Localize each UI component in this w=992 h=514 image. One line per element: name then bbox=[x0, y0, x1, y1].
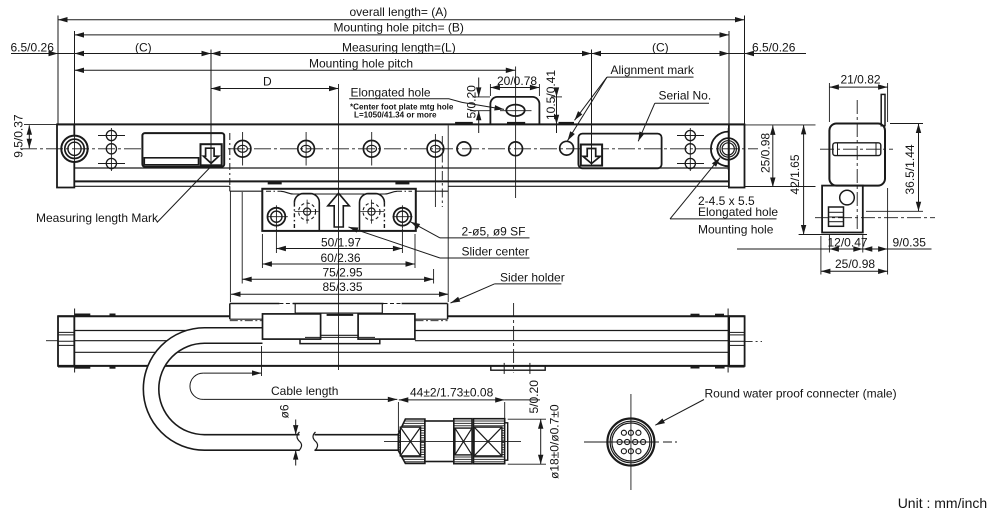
svg-text:60/2.36: 60/2.36 bbox=[321, 251, 361, 265]
svg-text:Round water proof connecter (m: Round water proof connecter (male) bbox=[705, 386, 897, 400]
svg-text:Elongated hole: Elongated hole bbox=[351, 85, 431, 99]
svg-text:Sider holder: Sider holder bbox=[500, 270, 565, 284]
svg-text:50/1.97: 50/1.97 bbox=[321, 235, 361, 249]
svg-text:36.5/1.44: 36.5/1.44 bbox=[903, 144, 917, 194]
svg-text:5/0.20: 5/0.20 bbox=[464, 85, 478, 119]
svg-text:6.5/0.26: 6.5/0.26 bbox=[11, 41, 55, 55]
svg-text:Measuring length=(L): Measuring length=(L) bbox=[342, 40, 456, 54]
svg-text:Mounting hole pitch= (B): Mounting hole pitch= (B) bbox=[334, 21, 464, 35]
svg-text:25/0.98: 25/0.98 bbox=[835, 257, 875, 271]
svg-text:12/0.47: 12/0.47 bbox=[828, 236, 868, 250]
svg-text:Elongated hole: Elongated hole bbox=[698, 205, 778, 219]
svg-text:25/0.98: 25/0.98 bbox=[759, 133, 773, 173]
svg-text:Slider center: Slider center bbox=[462, 244, 529, 258]
svg-text:(C): (C) bbox=[652, 41, 669, 55]
svg-text:6.5/0.26: 6.5/0.26 bbox=[752, 41, 796, 55]
svg-text:20/0.78: 20/0.78 bbox=[497, 74, 537, 88]
svg-text:ø6: ø6 bbox=[278, 404, 292, 418]
svg-text:44±2/1.73±0.08: 44±2/1.73±0.08 bbox=[410, 385, 494, 399]
svg-text:Cable length: Cable length bbox=[271, 384, 338, 398]
svg-text:L=1050/41.34 or more: L=1050/41.34 or more bbox=[354, 110, 437, 119]
svg-text:ø18±0/ø0.7±0: ø18±0/ø0.7±0 bbox=[548, 404, 562, 479]
svg-text:42/1.65: 42/1.65 bbox=[788, 154, 802, 194]
svg-text:5/0.20: 5/0.20 bbox=[527, 380, 541, 414]
svg-text:85/3.35: 85/3.35 bbox=[323, 280, 363, 294]
svg-text:Serial No.: Serial No. bbox=[659, 89, 712, 103]
svg-text:Measuring length Mark: Measuring length Mark bbox=[36, 211, 159, 225]
svg-text:(C): (C) bbox=[135, 41, 152, 55]
svg-text:10.5/0.41: 10.5/0.41 bbox=[544, 70, 558, 120]
svg-text:Unit : mm/inch: Unit : mm/inch bbox=[898, 495, 987, 511]
svg-text:2-ø5, ø9 SF: 2-ø5, ø9 SF bbox=[462, 224, 526, 238]
svg-text:9.5/0.37: 9.5/0.37 bbox=[12, 114, 26, 158]
svg-text:overall length= (A): overall length= (A) bbox=[350, 5, 448, 19]
svg-text:9/0.35: 9/0.35 bbox=[893, 236, 927, 250]
svg-text:Mounting hole pitch: Mounting hole pitch bbox=[309, 56, 413, 70]
svg-text:Alignment mark: Alignment mark bbox=[611, 63, 695, 77]
svg-text:Mounting hole: Mounting hole bbox=[698, 223, 774, 237]
svg-text:75/2.95: 75/2.95 bbox=[323, 266, 363, 280]
svg-text:D: D bbox=[263, 75, 272, 89]
svg-text:21/0.82: 21/0.82 bbox=[841, 73, 881, 87]
